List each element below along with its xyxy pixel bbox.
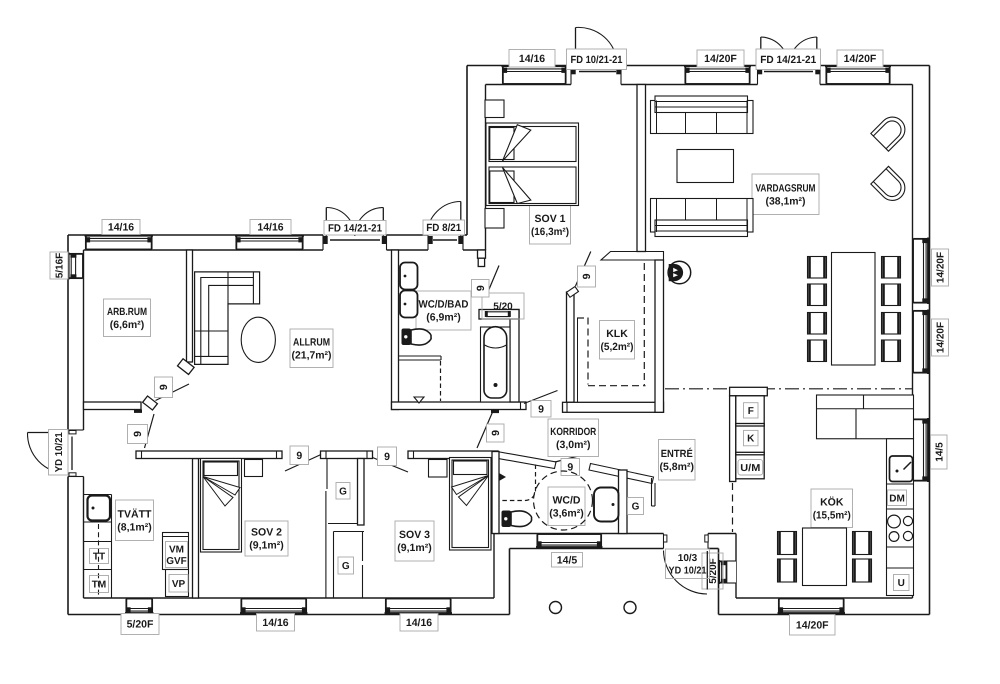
svg-text:10/3: 10/3 [678,553,698,564]
svg-text:VM: VM [169,544,184,555]
svg-text:KÖK: KÖK [820,496,844,508]
svg-text:TT: TT [93,552,105,563]
svg-text:(5,2m²): (5,2m²) [601,341,634,353]
svg-text:U/M: U/M [740,463,760,474]
svg-text:14/20F: 14/20F [704,53,737,65]
svg-text:G: G [339,486,347,497]
svg-text:9: 9 [296,450,302,462]
svg-text:14/5: 14/5 [557,554,578,566]
svg-text:FD 14/21-21: FD 14/21-21 [328,222,382,234]
svg-text:14/5: 14/5 [934,442,945,462]
svg-text:9: 9 [538,403,544,415]
svg-text:(16,3m²): (16,3m²) [531,226,569,238]
svg-text:FD 8/21: FD 8/21 [426,222,461,234]
svg-text:9: 9 [384,451,390,463]
svg-text:SOV 2: SOV 2 [251,527,282,539]
svg-text:VARDAGSRUM: VARDAGSRUM [756,182,816,194]
svg-text:5/20F: 5/20F [127,619,154,631]
svg-text:(8,1m²): (8,1m²) [117,521,151,533]
svg-text:VP: VP [172,579,186,590]
svg-text:SOV 3: SOV 3 [399,529,430,541]
svg-text:FD 14/21-21: FD 14/21-21 [760,54,816,66]
svg-text:(9,1m²): (9,1m²) [397,542,431,554]
svg-text:14/20F: 14/20F [796,619,829,631]
svg-text:U: U [898,578,905,589]
svg-text:DM: DM [889,493,905,504]
svg-text:9: 9 [567,462,573,474]
svg-text:14/16: 14/16 [257,222,283,234]
svg-text:14/20F: 14/20F [936,322,947,353]
svg-text:YD 10/21: YD 10/21 [54,432,65,472]
svg-text:SOV 1: SOV 1 [535,213,566,225]
svg-text:(3,6m²): (3,6m²) [549,507,583,519]
svg-text:5/20: 5/20 [493,302,513,313]
svg-text:(6,6m²): (6,6m²) [110,319,144,331]
svg-text:9: 9 [581,273,593,279]
svg-text:14/16: 14/16 [406,617,432,629]
svg-text:(3,0m²): (3,0m²) [556,439,590,451]
svg-text:(21,7m²): (21,7m²) [292,349,332,361]
svg-text:WC/D: WC/D [553,494,581,506]
svg-text:FD 10/21-21: FD 10/21-21 [571,54,623,66]
svg-text:YD 10/21: YD 10/21 [669,566,707,577]
svg-text:F: F [748,406,754,417]
svg-text:WC/D/BAD: WC/D/BAD [419,299,469,311]
svg-text:ARB.RUM: ARB.RUM [107,306,147,318]
svg-text:9: 9 [158,384,170,390]
svg-text:K: K [747,434,755,445]
svg-text:G: G [632,502,640,513]
svg-text:9: 9 [490,430,502,436]
svg-text:9: 9 [475,285,487,291]
svg-text:KLK: KLK [606,328,628,340]
svg-text:5/16F: 5/16F [55,253,66,279]
svg-text:14/16: 14/16 [519,53,545,65]
svg-text:14/20F: 14/20F [844,53,877,65]
svg-text:ALLRUM: ALLRUM [293,336,330,348]
svg-text:(6,9m²): (6,9m²) [426,312,460,324]
svg-text:(9,1m²): (9,1m²) [249,540,283,552]
svg-text:14/16: 14/16 [262,617,288,629]
svg-text:G: G [342,561,350,572]
svg-text:(5,8m²): (5,8m²) [660,461,694,473]
svg-text:TM: TM [92,580,106,591]
svg-text:14/20F: 14/20F [936,252,947,283]
svg-text:TVÄTT: TVÄTT [118,508,153,520]
svg-text:(15,5m²): (15,5m²) [813,509,851,521]
svg-text:KORRIDOR: KORRIDOR [550,426,596,438]
svg-text:(38,1m²): (38,1m²) [766,195,806,207]
svg-text:14/16: 14/16 [108,222,134,234]
svg-text:9: 9 [132,431,144,437]
svg-text:GVF: GVF [166,556,187,567]
svg-text:ENTRÉ: ENTRÉ [661,447,693,460]
